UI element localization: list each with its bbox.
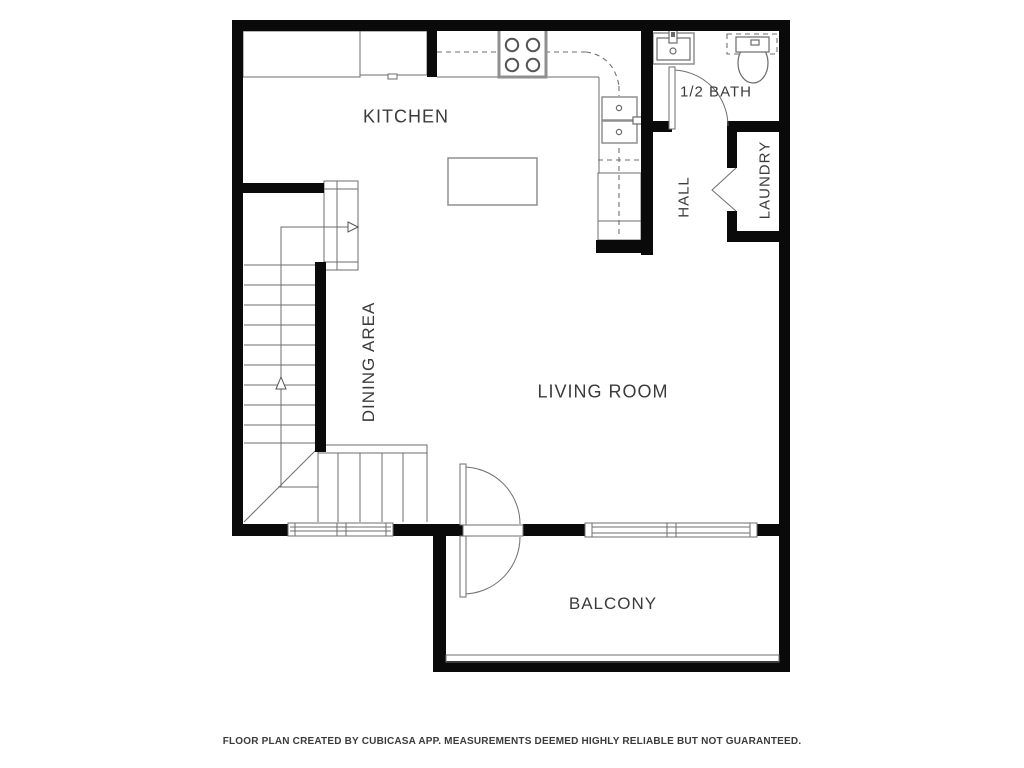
bifold-door-icon: [712, 168, 736, 211]
disclaimer-text: FLOOR PLAN CREATED BY CUBICASA APP. MEAS…: [0, 736, 1024, 747]
room-label-hall: HALL: [676, 176, 693, 218]
floor-plan-drawing: [0, 0, 1024, 768]
kitchen-sink-icon: [602, 97, 646, 143]
room-label-balcony: BALCONY: [569, 594, 657, 614]
balcony-railing: [446, 655, 779, 662]
kitchen-island: [448, 158, 537, 205]
balcony-double-door-icon: [460, 464, 523, 597]
room-label-kitchen: KITCHEN: [363, 107, 449, 128]
room-label-laundry: LAUNDRY: [757, 141, 774, 219]
kitchen-counters: [243, 31, 641, 240]
room-label-living-room: LIVING ROOM: [537, 382, 668, 403]
staircase-icon: [244, 181, 427, 522]
toilet-icon: [727, 34, 777, 83]
window-stairs: [288, 523, 393, 536]
bath-sink-icon: [653, 30, 694, 64]
floor-plan: KITCHEN 1/2 BATH HALL LAUNDRY DINING ARE…: [0, 0, 1024, 768]
room-label-half-bath: 1/2 BATH: [680, 84, 752, 101]
stove-icon: [499, 29, 546, 77]
window-living-room: [585, 523, 757, 537]
room-label-dining-area: DINING AREA: [359, 302, 379, 423]
